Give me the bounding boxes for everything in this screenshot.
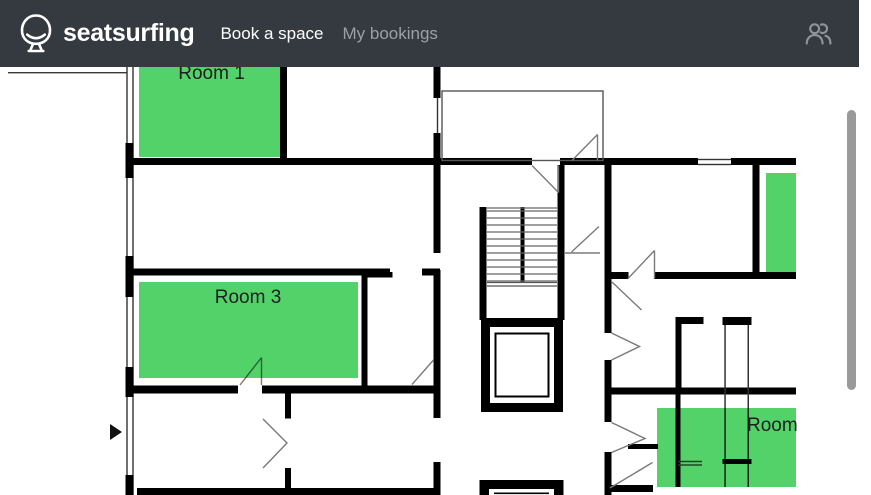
nav-link-my-bookings[interactable]: My bookings <box>342 20 437 48</box>
space-room-right-strip[interactable] <box>766 173 796 272</box>
floorplan-canvas[interactable]: Room 1 Room 3 Room <box>0 0 871 495</box>
brand-link[interactable]: seatsurfing <box>16 11 194 57</box>
nav-link-book-a-space[interactable]: Book a space <box>220 20 323 48</box>
space-label-room-3: Room 3 <box>215 287 282 308</box>
space-label-room-bottom-right: Room <box>747 415 798 436</box>
scrollbar-thumb[interactable] <box>847 110 856 390</box>
seatsurfing-logo-icon <box>16 11 56 57</box>
position-marker-icon <box>110 424 122 440</box>
navbar: seatsurfing Book a space My bookings <box>0 0 859 67</box>
user-menu-button[interactable] <box>804 21 833 46</box>
brand-name: seatsurfing <box>63 19 194 48</box>
people-icon <box>804 21 833 46</box>
